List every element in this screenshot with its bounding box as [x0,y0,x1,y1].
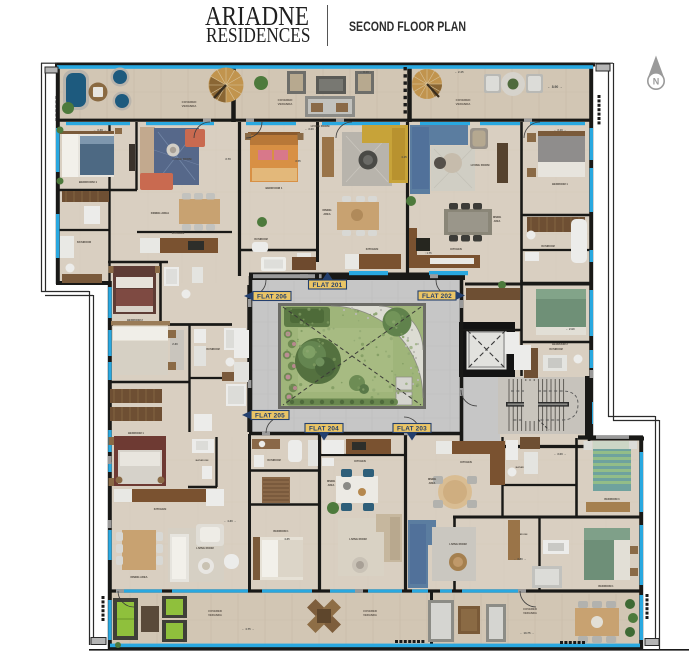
svg-text:FLAT 201: FLAT 201 [313,282,343,289]
svg-text:BATHROOM: BATHROOM [541,245,554,248]
svg-text:↑ 1.75: ↑ 1.75 [424,251,432,255]
svg-text:2.30: 2.30 [172,342,178,346]
svg-text:KITCHEN: KITCHEN [460,460,472,464]
svg-text:FLAT 206: FLAT 206 [257,294,287,301]
svg-text:KITCHEN: KITCHEN [154,507,166,511]
svg-text:LIVING ROOM: LIVING ROOM [196,546,213,550]
svg-text:← 10.75 →: ← 10.75 → [520,631,534,635]
svg-text:BEDROOM 2: BEDROOM 2 [552,342,568,346]
svg-text:FLAT 204: FLAT 204 [309,426,339,433]
svg-text:AREA: AREA [323,212,330,216]
svg-text:← 3.00 →: ← 3.00 → [554,452,567,456]
svg-text:LIVING ROOM: LIVING ROOM [173,157,192,161]
svg-text:BEDROOM 1: BEDROOM 1 [273,530,289,533]
svg-text:← 4.30 →: ← 4.30 → [224,519,237,523]
svg-text:DINING: DINING [327,480,336,483]
svg-text:LIVING ROOM: LIVING ROOM [471,163,490,167]
svg-text:DINING AREA: DINING AREA [151,211,169,215]
svg-text:VERANDA: VERANDA [182,104,198,108]
svg-text:VERANDA: VERANDA [208,613,222,617]
svg-text:BATHROOM: BATHROOM [267,459,280,462]
svg-text:← 3.30 →: ← 3.30 → [93,128,107,132]
svg-text:BEDROOM 1: BEDROOM 1 [266,186,283,190]
svg-text:← 8.10 →: ← 8.10 → [360,70,373,74]
svg-text:4.15: 4.15 [401,155,407,159]
svg-text:BATHROOM: BATHROOM [196,459,209,462]
svg-text:4.25: 4.25 [284,537,290,541]
svg-text:BATHROOM: BATHROOM [549,348,562,351]
svg-text:KITCHEN: KITCHEN [172,231,184,235]
svg-text:BEDROOM 3: BEDROOM 3 [604,498,620,501]
svg-text:← 4.75 →: ← 4.75 → [242,627,255,631]
svg-text:3.70: 3.70 [225,157,231,161]
svg-text:BATHROOM: BATHROOM [254,238,267,241]
svg-text:BEDROOM 1: BEDROOM 1 [128,431,144,435]
svg-text:AREA: AREA [429,482,436,485]
svg-text:FLAT 205: FLAT 205 [255,413,285,420]
svg-text:LIVING ROOM: LIVING ROOM [449,542,466,546]
svg-text:BATHROOM: BATHROOM [206,348,219,351]
svg-text:← 3.10 →: ← 3.10 → [554,128,567,132]
svg-text:DINING: DINING [322,208,331,212]
svg-text:DINING: DINING [493,216,502,219]
svg-text:KITCHEN: KITCHEN [366,247,378,251]
svg-text:FLAT 203: FLAT 203 [397,426,427,433]
svg-text:← 2.90: ← 2.90 [565,327,574,331]
svg-text:FLAT 202: FLAT 202 [422,293,452,300]
svg-text:N: N [653,77,660,87]
svg-text:← 2.45: ← 2.45 [454,70,463,74]
svg-text:← 3.00 →: ← 3.00 → [305,127,318,131]
svg-text:VERANDA: VERANDA [363,613,377,617]
svg-text:BATHROOM: BATHROOM [77,241,91,244]
svg-text:3.55: 3.55 [295,159,301,163]
svg-text:DINING AREA: DINING AREA [130,575,147,579]
svg-text:VERANDA: VERANDA [456,102,472,106]
svg-text:AREA: AREA [328,484,335,487]
svg-text:LIVING ROOM: LIVING ROOM [349,537,366,541]
svg-text:BEDROOM 1: BEDROOM 1 [598,585,614,588]
svg-text:VERANDA: VERANDA [278,102,294,106]
svg-text:VERANDA: VERANDA [523,611,537,615]
svg-text:KITCHEN: KITCHEN [450,247,462,251]
svg-text:AREA: AREA [494,220,501,223]
svg-text:KITCHEN: KITCHEN [354,459,366,463]
svg-text:DINING: DINING [428,478,437,481]
svg-text:← 8.90 →: ← 8.90 → [547,85,562,89]
svg-text:BEDROOM 1: BEDROOM 1 [79,180,98,184]
svg-text:← 3.80 →: ← 3.80 → [514,557,527,561]
svg-text:BEDROOM 1: BEDROOM 1 [552,182,568,186]
